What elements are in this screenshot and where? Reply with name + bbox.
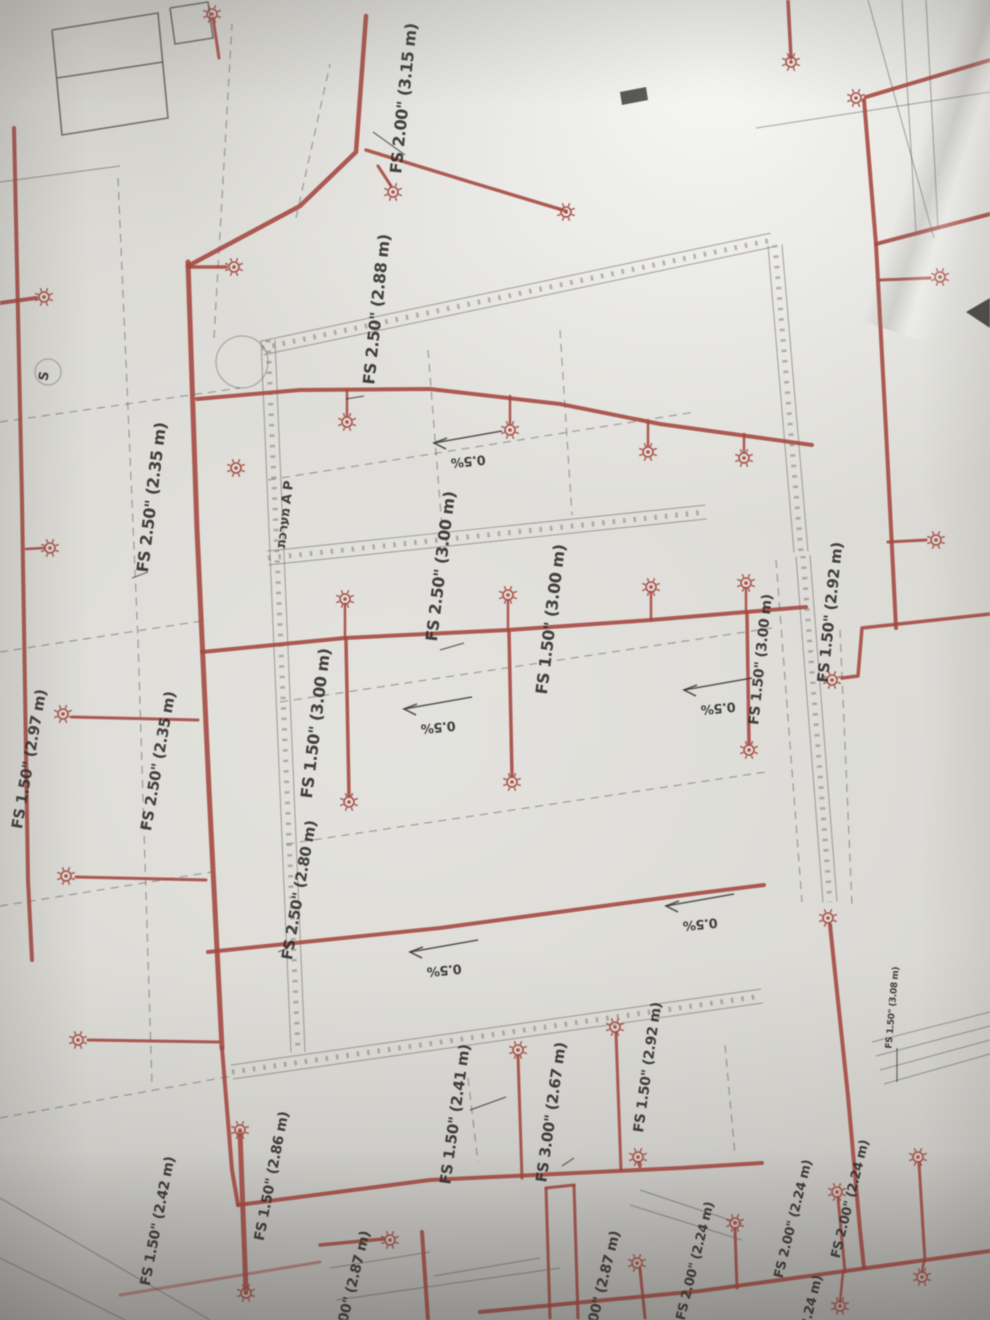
- sprinkler-tick: [831, 1308, 834, 1309]
- sprinkler-tick: [74, 1031, 75, 1034]
- sprinkler-tick: [240, 263, 243, 264]
- pipe-label: FS 1.50" (2.97 m): [8, 688, 50, 830]
- sprinkler-dot: [649, 585, 653, 589]
- sprinkler-tick: [647, 578, 648, 581]
- sprinkler-tick: [782, 58, 785, 59]
- sprinkler-pipe: [880, 278, 930, 280]
- sprinkler-tick: [237, 1295, 240, 1296]
- sprinkler-tick: [69, 710, 72, 711]
- sprinkler-head-icon: [225, 258, 243, 276]
- sprinkler-tick: [918, 1268, 919, 1271]
- sprinkler-tick: [752, 579, 755, 580]
- sprinkler-tick: [41, 544, 44, 545]
- sprinkler-pipe: [240, 1132, 246, 1292]
- sprinkler-tick: [936, 268, 937, 271]
- sprinkler-tick: [508, 773, 509, 776]
- wall-band-edge: [263, 247, 773, 355]
- sprinkler-tick: [642, 583, 645, 584]
- sprinkler-tick: [80, 1046, 81, 1049]
- sprinkler-tick: [514, 591, 517, 592]
- sprinkler-tick: [65, 720, 66, 723]
- wall-band-edge: [267, 505, 705, 551]
- sprinkler-dot: [508, 428, 512, 432]
- sprinkler-tick: [341, 605, 342, 608]
- sprinkler-tick: [833, 1183, 834, 1186]
- sprinkler-head-icon: [628, 1254, 646, 1272]
- sprinkler-tick: [838, 682, 841, 683]
- sprinkler-tick: [340, 804, 343, 805]
- sprinkler-tick: [399, 194, 402, 195]
- sprinkler-tick: [824, 909, 825, 912]
- sprinkler-dot: [613, 1025, 617, 1029]
- sprinkler-tick: [824, 924, 825, 927]
- sprinkler-tick: [737, 1214, 738, 1217]
- sprinkler-tick: [503, 778, 506, 779]
- sprinkler-tick: [942, 268, 943, 271]
- slope-arrow-shaft: [410, 940, 478, 952]
- sprinkler-tick: [57, 878, 60, 879]
- sprinkler-tick: [862, 94, 865, 95]
- sprinkler-tick: [842, 1312, 843, 1315]
- sprinkler-tick: [742, 574, 743, 577]
- sprinkler-tick: [514, 1041, 515, 1044]
- sprinkler-dot: [516, 1048, 520, 1052]
- sprinkler-tick: [852, 89, 853, 92]
- sprinkler-tick: [640, 1148, 641, 1151]
- sprinkler-tick: [924, 1283, 925, 1286]
- sprinkler-tick: [846, 1302, 849, 1303]
- sprinkler-tick: [252, 1295, 255, 1296]
- sprinkler-tick: [838, 676, 841, 677]
- sprinkler-tick: [35, 293, 38, 294]
- sprinkler-tick: [524, 1046, 527, 1047]
- sprinkler-tick: [353, 418, 356, 419]
- sprinkler-tick: [230, 273, 231, 276]
- sprinkler-tick: [57, 872, 60, 873]
- sprinkler-tick: [847, 100, 850, 101]
- sprinkler-tick: [499, 597, 502, 598]
- sprinkler-tick: [232, 459, 233, 462]
- sprinkler-tick: [501, 432, 504, 433]
- sprinkler-tick: [512, 436, 513, 439]
- dashed-grid-line: [214, 24, 232, 338]
- room-outline: [170, 2, 213, 44]
- slope-label: 0.5%: [450, 451, 486, 470]
- sprinkler-pipe: [919, 1163, 925, 1261]
- sprinkler-tick: [40, 288, 41, 291]
- sprinkler-tick: [238, 474, 239, 477]
- slope-marker: 0.5%: [684, 678, 752, 717]
- sprinkler-tick: [787, 53, 788, 56]
- sprinkler-tick: [218, 16, 221, 17]
- pipe-label: FS 2.50" (3.00 m): [422, 490, 459, 642]
- sprinkler-tick: [793, 53, 794, 56]
- sprinkler-tick: [653, 593, 654, 596]
- room-outline: [57, 62, 163, 78]
- sprinkler-tick: [351, 808, 352, 811]
- sprinkler-tick: [920, 1148, 921, 1151]
- sprinkler-tick: [520, 1056, 521, 1059]
- sprinkler-tick: [62, 867, 63, 870]
- sprinkler-tick: [236, 1136, 237, 1139]
- sprinkler-tick: [633, 1254, 634, 1257]
- sprinkler-pipe: [866, 60, 990, 97]
- wall-band-edge: [231, 989, 761, 1065]
- sprinkler-tick: [514, 597, 517, 598]
- sprinkler-head-icon: [819, 909, 837, 927]
- sprinkler-tick: [353, 424, 356, 425]
- dashed-grid-line: [0, 388, 240, 422]
- sprinkler-head-icon: [384, 183, 402, 201]
- sprinkler-tick: [634, 1148, 635, 1151]
- sprinkler-pipe: [546, 1185, 574, 1188]
- sprinkler-tick: [735, 460, 738, 461]
- sprinkler-tick: [355, 798, 358, 799]
- sprinkler-head-icon: [557, 203, 575, 221]
- slope-arrow-shaft: [404, 697, 472, 709]
- sprinkler-dot: [636, 1155, 640, 1159]
- sprinkler-tick: [52, 554, 53, 557]
- sprinkler-tick: [643, 1259, 646, 1260]
- sprinkler-pipe: [238, 1163, 762, 1205]
- sprinkler-tick: [225, 269, 228, 270]
- sprinkler-dot: [48, 546, 52, 550]
- pipe-label: FS 2.00" (2.24 m): [772, 1158, 816, 1279]
- sprinkler-tick: [68, 867, 69, 870]
- sprinkler-tick: [606, 1029, 609, 1030]
- pipe-label: FS 2.00" (2.24 m): [674, 1200, 718, 1320]
- sprinkler-tick: [392, 1231, 393, 1234]
- sprinkler-tick: [510, 586, 511, 589]
- sprinkler-tick: [657, 583, 660, 584]
- sprinkler-tick: [512, 421, 513, 424]
- sprinkler-tick: [834, 671, 835, 674]
- sprinkler-tick: [499, 591, 502, 592]
- slope-label: 0.5%: [420, 717, 456, 736]
- pipe-label: (2.24 m): [797, 1274, 826, 1320]
- sprinkler-tick: [74, 1046, 75, 1049]
- sprinkler-tick: [611, 1018, 612, 1021]
- sprinkler-head-icon: [847, 89, 865, 107]
- dashed-grid-line: [468, 1078, 478, 1162]
- dashed-grid-line: [138, 640, 152, 1085]
- sprinkler-tick: [740, 464, 741, 467]
- sprinkler-tick: [40, 303, 41, 306]
- sprinkler-tick: [748, 589, 749, 592]
- sprinkler-tick: [347, 590, 348, 593]
- sprinkler-tick: [746, 464, 747, 467]
- dashed-grid-line: [560, 330, 572, 515]
- sprinkler-tick: [510, 601, 511, 604]
- sprinkler-tick: [828, 1194, 831, 1195]
- sprinkler-tick: [396, 1242, 399, 1243]
- sprinkler-tick: [504, 586, 505, 589]
- sprinkler-tick: [509, 1046, 512, 1047]
- slope-arrow-shaft: [434, 431, 502, 443]
- sprinkler-tick: [932, 531, 933, 534]
- sprinkler-tick: [514, 773, 515, 776]
- sprinkler-pipe: [202, 607, 806, 652]
- sprinkler-dot: [646, 450, 650, 454]
- sprinkler-tick: [236, 258, 237, 261]
- sprinkler-tick: [351, 793, 352, 796]
- sprinkler-tick: [755, 752, 758, 753]
- sprinkler-dot: [61, 712, 65, 716]
- sprinkler-tick: [227, 470, 230, 471]
- sprinkler-tick: [731, 1214, 732, 1217]
- sprinkler-tick: [741, 1225, 744, 1226]
- sprinkler-tick: [751, 741, 752, 744]
- wall-band: [231, 989, 763, 1079]
- sprinkler-tick: [942, 283, 943, 286]
- slope-arrow-head: [434, 438, 447, 449]
- sprinkler-tick: [506, 436, 507, 439]
- sprinkler-tick: [924, 1159, 927, 1160]
- sprinkler-tick: [752, 585, 755, 586]
- sprinkler-dot: [789, 60, 793, 64]
- sprinkler-tick: [509, 1052, 512, 1053]
- section-marker-label: S: [36, 371, 52, 382]
- sprinkler-pipe: [546, 1188, 550, 1318]
- sprinkler-dot: [64, 874, 68, 878]
- room-outline: [52, 13, 168, 135]
- sprinkler-tick: [847, 94, 850, 95]
- sprinkler-dot: [238, 1128, 242, 1132]
- sprinkler-dot: [916, 1155, 920, 1159]
- sprinkler-tick: [568, 218, 569, 221]
- sprinkler-dot: [747, 748, 751, 752]
- sprinkler-tick: [819, 914, 822, 915]
- sprinkler-tick: [80, 1031, 81, 1034]
- sprinkler-tick: [514, 1056, 515, 1059]
- sprinkler-tick: [381, 1242, 384, 1243]
- sprinkler-tick: [518, 778, 521, 779]
- slope-label: 0.5%: [426, 960, 462, 979]
- sprinkler-tick: [606, 1023, 609, 1024]
- slope-arrow-head: [410, 947, 423, 958]
- sprinkler-tick: [633, 1269, 634, 1272]
- wall-band: [267, 505, 706, 565]
- dashed-grid-line: [840, 630, 852, 905]
- sprinkler-pipe: [76, 877, 206, 880]
- sprinkler-dot: [347, 800, 351, 804]
- sprinkler-tick: [395, 183, 396, 186]
- sprinkler-tick: [59, 720, 60, 723]
- sprinkler-tick: [59, 705, 60, 708]
- sprinkler-dot: [854, 96, 858, 100]
- sprinkler-tick: [340, 798, 343, 799]
- sprinkler-tick: [237, 1289, 240, 1290]
- sprinkler-tick: [343, 413, 344, 416]
- wall-line: [0, 166, 120, 182]
- sprinkler-tick: [54, 716, 57, 717]
- dashed-grid-line: [268, 412, 695, 480]
- sprinkler-head-icon: [931, 268, 949, 286]
- sprinkler-tick: [56, 544, 59, 545]
- sprinkler-tick: [931, 279, 934, 280]
- sprinkler-tick: [345, 793, 346, 796]
- sprinkler-tick: [750, 454, 753, 455]
- sprinkler-tick: [568, 203, 569, 206]
- sprinkler-tick: [524, 1052, 527, 1053]
- pipe-label: FS 2.50" (2.88 m): [359, 233, 394, 385]
- sprinkler-tick: [338, 418, 341, 419]
- sprinkler-tick: [742, 589, 743, 592]
- slope-arrow-shaft: [684, 678, 752, 690]
- sprinkler-tick: [797, 64, 800, 65]
- sprinkler-pipe: [72, 717, 198, 720]
- sprinkler-tick: [62, 882, 63, 885]
- sprinkler-tick: [351, 595, 354, 596]
- wall-line: [868, 0, 934, 238]
- sprinkler-head-icon: [54, 705, 72, 723]
- slope-label: 0.5%: [700, 698, 736, 717]
- sprinkler-tick: [231, 1132, 234, 1133]
- sprinkler-tick: [653, 578, 654, 581]
- sprinkler-tick: [508, 788, 509, 791]
- sprinkler-pipe: [188, 262, 222, 1048]
- sprinkler-tick: [611, 1033, 612, 1036]
- sprinkler-tick: [514, 788, 515, 791]
- pipe-label: FS 3.00" (2.87 m): [576, 1229, 623, 1320]
- sprinkler-tick: [236, 273, 237, 276]
- sprinkler-tick: [913, 1273, 916, 1274]
- sprinkler-tick: [203, 10, 206, 11]
- sprinkler-pipe: [26, 548, 44, 549]
- sprinkler-tick: [351, 601, 354, 602]
- wall-line: [756, 92, 990, 128]
- sprinkler-tick: [726, 1225, 729, 1226]
- label-leader: [346, 396, 364, 399]
- dashed-grid-line: [776, 560, 802, 902]
- wall-line: [884, 1054, 990, 1084]
- sprinkler-pipe: [14, 128, 32, 960]
- label-leader: [440, 643, 464, 650]
- dashed-grid-line: [725, 1045, 735, 1155]
- slope-marker: 0.5%: [404, 697, 472, 736]
- sprinkler-tick: [240, 269, 243, 270]
- sprinkler-tick: [654, 448, 657, 449]
- sprinkler-dot: [934, 538, 938, 542]
- sprinkler-tick: [520, 1041, 521, 1044]
- sprinkler-tick: [84, 1036, 87, 1037]
- sprinkler-tick: [242, 470, 245, 471]
- sprinkler-tick: [942, 536, 945, 537]
- wall-line: [902, 0, 916, 232]
- sprinkler-tick: [516, 426, 519, 427]
- sprinkler-tick: [242, 1299, 243, 1302]
- pipe-label: FS 1.50" (2.86 m): [252, 1110, 293, 1242]
- sprinkler-pipe: [922, 1261, 924, 1272]
- sprinkler-pipe: [422, 1232, 428, 1320]
- sprinkler-tick: [516, 432, 519, 433]
- sprinkler-tick: [386, 1231, 387, 1234]
- sprinkler-pipe: [188, 16, 366, 266]
- pipe-label: FS 3.00" (2.67 m): [532, 1041, 569, 1183]
- sprinkler-dot: [835, 1190, 839, 1194]
- pipe-label: FS 1.50" (3.00 m): [297, 647, 334, 799]
- wall-line: [330, 1252, 430, 1268]
- sprinkler-tick: [642, 589, 645, 590]
- sprinkler-tick: [740, 752, 743, 753]
- sprinkler-tick: [928, 1273, 931, 1274]
- sprinkler-dot: [838, 1304, 842, 1308]
- wall-band-edge: [782, 244, 808, 551]
- sprinkler-tick: [828, 686, 829, 689]
- sprinkler-tick: [731, 1229, 732, 1232]
- sprinkler-dot: [343, 597, 347, 601]
- sprinkler-tick: [644, 1159, 647, 1160]
- detail-circle: [216, 336, 268, 388]
- wall-band-edge: [261, 233, 771, 341]
- sprinkler-tick: [946, 279, 949, 280]
- sprinkler-tick: [72, 872, 75, 873]
- sprinkler-tick: [858, 104, 859, 107]
- sprinkler-tick: [572, 208, 575, 209]
- sprinkler-tick: [748, 574, 749, 577]
- sprinkler-tick: [338, 424, 341, 425]
- wall-band-hatch: [775, 245, 801, 552]
- edge-mark: [966, 298, 990, 328]
- sprinkler-pipe: [346, 640, 349, 796]
- slope-arrow-head: [684, 685, 697, 696]
- sprinkler-tick: [918, 1283, 919, 1286]
- wall-band-edge: [269, 519, 707, 565]
- sprinkler-tick: [750, 460, 753, 461]
- sprinkler-tick: [355, 804, 358, 805]
- sprinkler-dot: [635, 1261, 639, 1265]
- sprinkler-tick: [46, 303, 47, 306]
- wall-line: [0, 1198, 210, 1320]
- sprinkler-tick: [629, 1153, 632, 1154]
- sprinkler-tick: [836, 1312, 837, 1315]
- sprinkler-tick: [928, 1279, 931, 1280]
- sprinkler-tick: [830, 909, 831, 912]
- sprinkler-tick: [225, 263, 228, 264]
- sprinkler-tick: [644, 458, 645, 461]
- sprinkler-tick: [741, 1219, 744, 1220]
- sprinkler-tick: [46, 288, 47, 291]
- sprinkler-tick: [203, 16, 206, 17]
- sprinkler-tick: [852, 104, 853, 107]
- sprinkler-dot: [76, 1038, 80, 1042]
- wall-band-hatch: [232, 996, 762, 1072]
- sprinkler-dot: [506, 593, 510, 597]
- sprinkler-tick: [909, 1153, 912, 1154]
- sprinkler-tick: [629, 1159, 632, 1160]
- sprinkler-dot: [920, 1275, 924, 1279]
- sprinkler-tick: [392, 1246, 393, 1249]
- sprinkler-tick: [828, 1188, 831, 1189]
- sprinkler-pipe: [574, 1185, 578, 1318]
- sprinkler-tick: [238, 459, 239, 462]
- sprinkler-tick: [639, 454, 642, 455]
- sprinkler-tick: [751, 756, 752, 759]
- sprinkler-pipe: [735, 1229, 737, 1288]
- column-block: [620, 87, 648, 105]
- sprinkler-tick: [834, 914, 837, 915]
- wall-band: [768, 244, 808, 552]
- plan-root: FS 2.00" (3.15 m)FS 2.50" (2.88 m)FS 2.5…: [0, 0, 990, 1320]
- dashed-grid-line: [286, 772, 766, 844]
- sprinkler-tick: [740, 746, 743, 747]
- sprinkler-tick: [231, 1126, 234, 1127]
- sprinkler-tick: [634, 1163, 635, 1166]
- sprinkler-tick: [927, 536, 930, 537]
- dashed-grid-line: [0, 1076, 232, 1118]
- slope-arrow-head: [404, 704, 417, 715]
- sprinkler-pipe: [616, 1033, 621, 1170]
